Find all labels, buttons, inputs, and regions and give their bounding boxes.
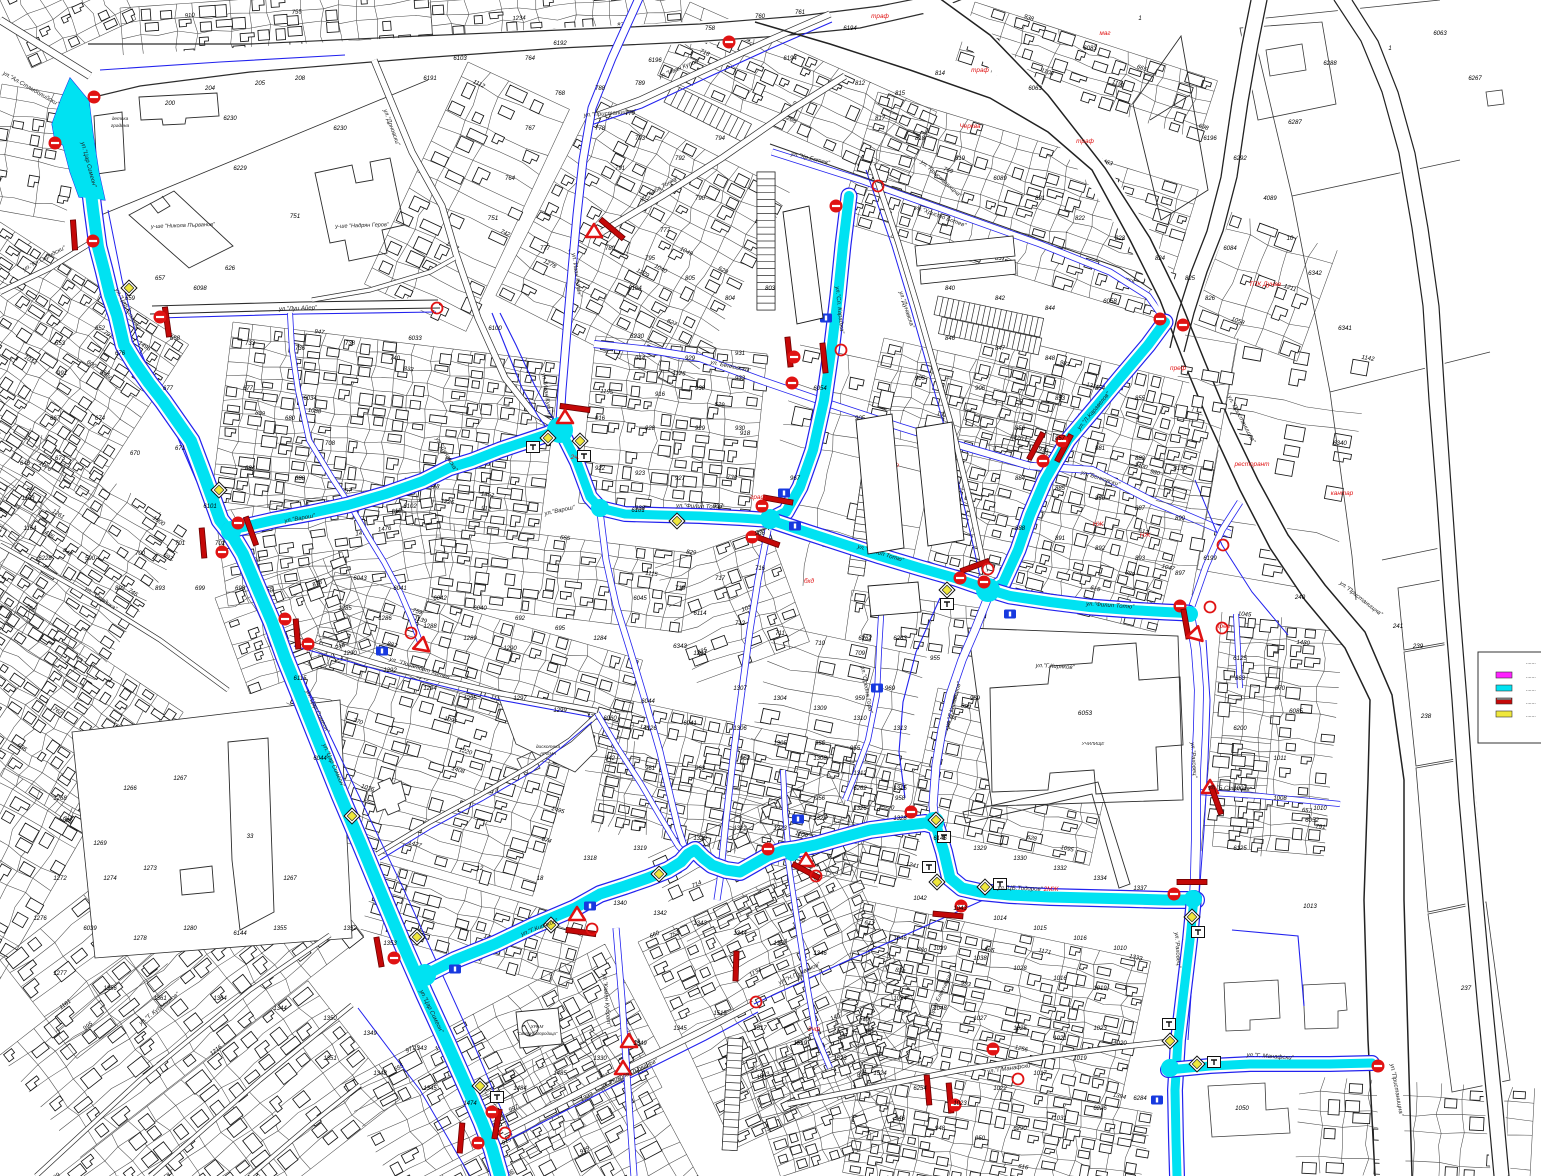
svg-text:маг: маг xyxy=(1099,30,1111,37)
svg-text:793: 793 xyxy=(635,136,646,142)
svg-text:6101: 6101 xyxy=(203,504,216,510)
svg-text:652: 652 xyxy=(95,326,106,332)
svg-text:.......: ....... xyxy=(1526,700,1536,706)
svg-text:НЖ: НЖ xyxy=(1140,532,1152,539)
svg-text:733: 733 xyxy=(245,341,256,347)
svg-text:6125: 6125 xyxy=(1233,655,1247,662)
svg-text:1308: 1308 xyxy=(813,756,827,762)
svg-text:6063: 6063 xyxy=(1028,86,1042,92)
svg-text:18: 18 xyxy=(537,876,544,882)
svg-text:6254: 6254 xyxy=(913,1086,927,1092)
svg-text:1007: 1007 xyxy=(1233,786,1247,792)
svg-text:791: 791 xyxy=(615,166,625,172)
svg-text:740: 740 xyxy=(390,356,401,362)
svg-text:716: 716 xyxy=(755,566,766,572)
svg-text:1480: 1480 xyxy=(1296,640,1310,647)
svg-text:755: 755 xyxy=(292,9,303,16)
svg-text:789: 789 xyxy=(635,81,646,87)
svg-text:815: 815 xyxy=(895,91,906,97)
svg-text:905: 905 xyxy=(915,376,926,382)
svg-text:1515: 1515 xyxy=(713,1011,727,1017)
svg-text:991: 991 xyxy=(57,371,67,377)
svg-text:1020: 1020 xyxy=(1113,1041,1127,1047)
svg-text:1345: 1345 xyxy=(673,1026,687,1032)
svg-text:1356: 1356 xyxy=(103,986,117,992)
svg-text:6262: 6262 xyxy=(853,786,867,792)
svg-text:1025: 1025 xyxy=(1013,1026,1027,1032)
svg-text:1268: 1268 xyxy=(53,796,67,802)
svg-text:6262: 6262 xyxy=(858,636,872,642)
svg-text:886: 886 xyxy=(1095,496,1106,502)
svg-text:1484: 1484 xyxy=(513,1086,527,1092)
svg-text:6342: 6342 xyxy=(1308,270,1322,277)
svg-text:897: 897 xyxy=(1175,571,1186,577)
svg-text:1043: 1043 xyxy=(953,906,967,912)
svg-text:1269: 1269 xyxy=(93,841,107,847)
svg-text:718: 718 xyxy=(675,586,686,592)
svg-text:823: 823 xyxy=(1115,236,1126,242)
svg-text:1034: 1034 xyxy=(893,996,907,1002)
svg-text:33: 33 xyxy=(247,834,254,840)
svg-text:6229: 6229 xyxy=(233,166,247,172)
svg-text:1345: 1345 xyxy=(423,1086,437,1092)
svg-text:657: 657 xyxy=(1302,808,1313,815)
svg-text:1291: 1291 xyxy=(693,651,706,657)
svg-text:Черква: Черква xyxy=(959,123,981,130)
svg-text:238: 238 xyxy=(1420,713,1432,720)
svg-text:6292: 6292 xyxy=(1233,156,1247,162)
svg-text:1318: 1318 xyxy=(583,856,597,862)
svg-text:6340: 6340 xyxy=(1333,440,1347,447)
svg-text:4126: 4126 xyxy=(643,726,657,732)
svg-text:674: 674 xyxy=(95,416,106,422)
svg-text:кантар: кантар xyxy=(1331,490,1354,497)
svg-text:892: 892 xyxy=(115,586,126,592)
svg-text:1010: 1010 xyxy=(1313,806,1327,812)
svg-text:1323: 1323 xyxy=(773,826,787,832)
svg-text:1297: 1297 xyxy=(513,696,527,702)
svg-text:6194: 6194 xyxy=(783,56,797,62)
svg-text:1019: 1019 xyxy=(1073,1056,1087,1062)
svg-text:916: 916 xyxy=(655,392,666,398)
svg-text:1364: 1364 xyxy=(213,996,227,1002)
svg-text:ул.”Луи Айер”: ул.”Луи Айер” xyxy=(278,304,318,312)
svg-text:1023: 1023 xyxy=(953,1101,967,1107)
svg-text:1273: 1273 xyxy=(143,866,157,872)
svg-text:1295: 1295 xyxy=(463,696,477,702)
svg-text:200: 200 xyxy=(164,101,176,107)
svg-text:955: 955 xyxy=(815,741,826,747)
svg-text:711: 711 xyxy=(775,631,785,637)
svg-text:6058: 6058 xyxy=(1103,298,1117,305)
svg-text:1286: 1286 xyxy=(378,616,392,622)
svg-text:6114: 6114 xyxy=(694,611,708,617)
svg-text:1010: 1010 xyxy=(1113,946,1127,952)
svg-text:6040: 6040 xyxy=(473,606,487,612)
svg-text:6085: 6085 xyxy=(1289,708,1303,715)
svg-text:1306: 1306 xyxy=(733,726,747,732)
svg-text:6042: 6042 xyxy=(433,596,447,602)
svg-text:937: 937 xyxy=(713,504,724,510)
svg-text:778: 778 xyxy=(595,126,606,132)
svg-text:717: 717 xyxy=(715,576,726,582)
svg-text:6263: 6263 xyxy=(893,636,907,642)
svg-text:870: 870 xyxy=(1275,686,1286,692)
svg-text:1346: 1346 xyxy=(813,951,827,957)
svg-text:6083: 6083 xyxy=(1083,46,1097,52)
svg-text:855: 855 xyxy=(1135,396,1146,402)
svg-text:1292: 1292 xyxy=(383,668,397,674)
svg-text:6063: 6063 xyxy=(1433,31,1447,37)
svg-text:6284: 6284 xyxy=(1133,1096,1147,1102)
svg-text:1344: 1344 xyxy=(273,1006,287,1012)
svg-text:1474: 1474 xyxy=(463,1101,477,1107)
svg-text:1163: 1163 xyxy=(22,496,36,502)
svg-text:958: 958 xyxy=(895,796,906,802)
svg-text:.......: ....... xyxy=(1526,713,1536,719)
svg-text:893: 893 xyxy=(1135,556,1146,562)
svg-text:6100: 6100 xyxy=(488,326,502,332)
svg-text:768: 768 xyxy=(555,91,566,97)
svg-text:градина: градина xyxy=(111,123,130,129)
svg-text:906: 906 xyxy=(975,386,986,392)
svg-text:1305: 1305 xyxy=(773,741,787,747)
svg-text:”Свето Богородица”: ”Свето Богородица” xyxy=(517,1031,558,1036)
svg-text:2чф: 2чф xyxy=(807,1026,821,1033)
svg-text:893: 893 xyxy=(155,586,166,592)
svg-text:942: 942 xyxy=(605,756,616,762)
svg-text:1322: 1322 xyxy=(733,826,747,832)
svg-text:1332: 1332 xyxy=(1053,866,1067,872)
svg-text:688: 688 xyxy=(295,476,306,482)
svg-text:АРЕНА: АРЕНА xyxy=(539,751,556,757)
svg-text:684: 684 xyxy=(245,466,256,472)
svg-text:1307: 1307 xyxy=(733,686,747,692)
svg-text:1013: 1013 xyxy=(1303,903,1317,910)
svg-text:959: 959 xyxy=(855,696,866,702)
svg-text:204: 204 xyxy=(204,86,216,92)
svg-text:6196: 6196 xyxy=(648,58,662,64)
svg-text:6054: 6054 xyxy=(813,386,827,392)
svg-text:.......: ....... xyxy=(1526,674,1536,680)
svg-text:677: 677 xyxy=(163,386,174,392)
svg-text:6230: 6230 xyxy=(630,333,645,340)
svg-text:923: 923 xyxy=(635,471,646,477)
svg-text:1340: 1340 xyxy=(613,901,627,907)
svg-text:6034: 6034 xyxy=(303,396,317,402)
svg-text:1008: 1008 xyxy=(1273,796,1287,802)
svg-text:6196: 6196 xyxy=(1203,136,1217,142)
svg-text:803: 803 xyxy=(765,286,776,292)
svg-text:2ч.: 2ч. xyxy=(570,454,580,461)
svg-text:1290: 1290 xyxy=(503,646,517,652)
svg-text:791: 791 xyxy=(1315,824,1326,831)
svg-text:928: 928 xyxy=(645,426,656,432)
svg-text:822: 822 xyxy=(1075,216,1086,222)
svg-text:2МЖ: 2МЖ xyxy=(1043,886,1060,893)
svg-text:1285: 1285 xyxy=(338,606,352,612)
svg-text:6045: 6045 xyxy=(633,596,647,602)
svg-text:6039: 6039 xyxy=(83,926,97,932)
svg-text:767: 767 xyxy=(525,126,536,132)
svg-text:963: 963 xyxy=(695,766,706,772)
svg-text:траф: траф xyxy=(971,67,989,74)
svg-text:1352: 1352 xyxy=(343,926,357,932)
svg-text:881: 881 xyxy=(1095,446,1105,452)
svg-text:6044: 6044 xyxy=(641,698,655,705)
svg-text:1021: 1021 xyxy=(1053,1036,1066,1042)
svg-text:6101: 6101 xyxy=(631,508,644,514)
svg-text:бхд: бхд xyxy=(804,577,815,585)
svg-text:1350: 1350 xyxy=(323,1016,337,1022)
svg-text:12: 12 xyxy=(477,866,484,872)
svg-text:1355: 1355 xyxy=(273,926,287,932)
svg-text:1274: 1274 xyxy=(103,876,117,882)
svg-text:237: 237 xyxy=(1460,985,1472,992)
svg-text:1337: 1337 xyxy=(1133,886,1147,892)
svg-text:1276: 1276 xyxy=(33,916,47,922)
svg-text:673: 673 xyxy=(55,456,66,462)
svg-text:779: 779 xyxy=(625,111,636,117)
svg-text:10: 10 xyxy=(1287,236,1294,242)
svg-text:930: 930 xyxy=(695,386,706,392)
svg-text:916: 916 xyxy=(595,416,606,422)
svg-text:892: 892 xyxy=(1095,546,1106,552)
svg-text:929: 929 xyxy=(685,356,696,362)
svg-text:1031: 1031 xyxy=(1053,1116,1066,1122)
svg-text:751: 751 xyxy=(488,215,499,222)
svg-text:795: 795 xyxy=(645,256,656,262)
svg-text:1016: 1016 xyxy=(1073,936,1087,942)
svg-text:6115: 6115 xyxy=(294,676,308,682)
svg-text:1349: 1349 xyxy=(633,1041,647,1047)
svg-text:788: 788 xyxy=(595,86,606,92)
svg-text:1277: 1277 xyxy=(53,971,67,977)
svg-text:.......: ....... xyxy=(1526,660,1536,666)
svg-text:847: 847 xyxy=(995,346,1006,352)
svg-text:6043: 6043 xyxy=(353,576,367,582)
svg-text:ресторант: ресторант xyxy=(1234,461,1271,468)
svg-text:6287: 6287 xyxy=(1288,119,1302,126)
svg-text:764: 764 xyxy=(505,176,516,182)
svg-text:671: 671 xyxy=(175,446,185,452)
svg-text:НЖ: НЖ xyxy=(1093,521,1105,528)
svg-text:927: 927 xyxy=(675,476,686,482)
svg-text:1343: 1343 xyxy=(413,1046,427,1052)
svg-text:граф: граф xyxy=(750,494,766,501)
svg-text:854: 854 xyxy=(1095,386,1106,392)
svg-text:1164: 1164 xyxy=(24,526,38,532)
svg-text:1039: 1039 xyxy=(933,946,947,952)
svg-text:844: 844 xyxy=(1045,306,1056,312)
svg-text:1320: 1320 xyxy=(693,836,707,842)
svg-text:6098: 6098 xyxy=(193,286,207,292)
svg-text:664: 664 xyxy=(100,371,111,377)
svg-text:856: 856 xyxy=(1015,426,1026,432)
svg-text:825: 825 xyxy=(1185,276,1196,282)
svg-text:933: 933 xyxy=(735,376,746,382)
svg-text:738: 738 xyxy=(727,474,738,481)
svg-text:842: 842 xyxy=(995,296,1006,302)
svg-text:659: 659 xyxy=(125,296,136,302)
svg-text:1011: 1011 xyxy=(1274,756,1287,762)
svg-text:910: 910 xyxy=(185,13,196,20)
svg-text:6194: 6194 xyxy=(843,26,857,32)
svg-text:1344: 1344 xyxy=(733,931,747,937)
svg-text:629: 629 xyxy=(714,402,725,409)
svg-text:712: 712 xyxy=(735,621,746,627)
svg-text:6267: 6267 xyxy=(1468,76,1482,82)
svg-text:760: 760 xyxy=(755,14,766,20)
svg-text:6144: 6144 xyxy=(233,931,247,937)
svg-text:1028: 1028 xyxy=(1013,966,1027,972)
svg-text:1294: 1294 xyxy=(423,686,437,692)
svg-text:817: 817 xyxy=(875,116,886,122)
svg-text:1016: 1016 xyxy=(1053,976,1067,982)
svg-text:1342: 1342 xyxy=(653,911,667,917)
svg-text:1019: 1019 xyxy=(1093,986,1107,992)
svg-text:1519: 1519 xyxy=(793,1041,807,1047)
svg-text:590: 590 xyxy=(85,556,96,562)
svg-text:1312: 1312 xyxy=(853,771,867,777)
svg-text:1361: 1361 xyxy=(153,996,166,1002)
svg-text:дискотека: дискотека xyxy=(536,744,561,750)
svg-text:1334: 1334 xyxy=(1093,876,1107,882)
svg-text:6060: 6060 xyxy=(603,716,617,722)
svg-text:1348: 1348 xyxy=(373,1071,387,1077)
svg-text:6146: 6146 xyxy=(933,836,947,842)
svg-text:701: 701 xyxy=(175,541,185,547)
svg-text:1: 1 xyxy=(1388,46,1391,52)
svg-text:6288: 6288 xyxy=(1323,61,1337,67)
svg-text:4089: 4089 xyxy=(1263,196,1277,202)
svg-text:758: 758 xyxy=(705,26,716,32)
svg-text:708: 708 xyxy=(325,441,336,447)
svg-text:626: 626 xyxy=(225,266,236,272)
svg-text:6103: 6103 xyxy=(453,56,467,62)
svg-text:699: 699 xyxy=(195,586,206,592)
svg-text:751: 751 xyxy=(290,213,300,220)
svg-text:857: 857 xyxy=(1055,436,1066,442)
svg-text:814: 814 xyxy=(935,71,946,77)
svg-text:890: 890 xyxy=(1175,516,1186,522)
svg-text:736: 736 xyxy=(295,346,306,352)
svg-text:1234: 1234 xyxy=(512,15,526,22)
svg-text:677: 677 xyxy=(243,386,254,392)
svg-text:детска: детска xyxy=(112,116,129,122)
svg-text:676: 676 xyxy=(115,351,126,357)
svg-text:1352: 1352 xyxy=(773,941,787,947)
svg-text:6191: 6191 xyxy=(423,76,436,82)
svg-text:794: 794 xyxy=(715,136,726,142)
svg-text:1023: 1023 xyxy=(1093,1026,1107,1032)
svg-text:6192: 6192 xyxy=(553,41,567,47)
svg-text:преф: преф xyxy=(1170,365,1187,372)
svg-text:1524: 1524 xyxy=(873,1071,887,1077)
svg-text:680: 680 xyxy=(285,416,296,422)
svg-text:792: 792 xyxy=(675,156,686,162)
svg-text:657: 657 xyxy=(155,276,166,282)
svg-text:239: 239 xyxy=(1412,643,1424,650)
svg-text:812: 812 xyxy=(855,81,866,87)
svg-text:1288: 1288 xyxy=(423,624,437,630)
svg-text:6230: 6230 xyxy=(223,116,237,122)
svg-text:840: 840 xyxy=(945,286,956,292)
svg-text:6033: 6033 xyxy=(408,336,422,342)
svg-text:936: 936 xyxy=(755,531,766,537)
svg-text:1330: 1330 xyxy=(593,1056,607,1062)
svg-text:1046: 1046 xyxy=(893,936,907,942)
svg-text:.......: ....... xyxy=(1526,687,1536,693)
svg-text:956: 956 xyxy=(815,796,826,802)
svg-text:884: 884 xyxy=(1015,476,1026,482)
svg-text:653: 653 xyxy=(55,341,66,347)
svg-text:ХРАМ: ХРАМ xyxy=(530,1024,544,1029)
svg-text:930: 930 xyxy=(735,426,746,432)
svg-text:6044: 6044 xyxy=(313,756,327,762)
svg-text:955: 955 xyxy=(850,745,861,752)
svg-text:1330: 1330 xyxy=(1013,856,1027,862)
svg-text:863: 863 xyxy=(1235,676,1246,682)
svg-text:1048: 1048 xyxy=(933,1006,947,1012)
svg-text:888: 888 xyxy=(1015,526,1026,532)
svg-text:804: 804 xyxy=(725,296,736,302)
svg-text:1349: 1349 xyxy=(363,1031,377,1037)
svg-text:1304: 1304 xyxy=(773,696,787,702)
svg-text:1325: 1325 xyxy=(813,816,827,822)
svg-text:761: 761 xyxy=(795,10,805,16)
svg-text:1014: 1014 xyxy=(993,916,1007,922)
svg-text:853: 853 xyxy=(1055,396,1066,402)
svg-text:702: 702 xyxy=(215,541,226,547)
svg-text:824: 824 xyxy=(1155,256,1166,262)
svg-text:738: 738 xyxy=(345,341,356,347)
svg-text:698: 698 xyxy=(235,586,246,592)
svg-text:1351: 1351 xyxy=(323,1056,336,1062)
svg-text:6200: 6200 xyxy=(1233,726,1247,732)
svg-text:прев: прев xyxy=(1216,623,1231,630)
svg-text:700: 700 xyxy=(135,551,146,557)
svg-text:955: 955 xyxy=(930,656,941,662)
svg-text:6226: 6226 xyxy=(1093,1106,1107,1112)
svg-text:764: 764 xyxy=(525,56,536,62)
svg-text:6125: 6125 xyxy=(1233,846,1247,852)
svg-text:6052: 6052 xyxy=(1305,817,1319,824)
svg-text:967: 967 xyxy=(790,476,801,482)
svg-text:887: 887 xyxy=(1135,506,1146,512)
svg-text:931: 931 xyxy=(735,351,745,357)
svg-text:6041: 6041 xyxy=(393,586,406,592)
svg-text:846: 846 xyxy=(945,336,956,342)
svg-text:1315: 1315 xyxy=(893,786,907,792)
svg-text:1272: 1272 xyxy=(53,876,67,882)
svg-text:205: 205 xyxy=(254,81,266,87)
svg-text:1050: 1050 xyxy=(1235,1105,1249,1112)
svg-text:950: 950 xyxy=(975,1136,986,1142)
svg-text:6130: 6130 xyxy=(1173,466,1187,472)
svg-text:1326: 1326 xyxy=(853,806,867,812)
svg-text:946: 946 xyxy=(895,1116,906,1122)
svg-text:692: 692 xyxy=(515,616,526,622)
svg-text:1042: 1042 xyxy=(913,896,927,902)
svg-text:670: 670 xyxy=(130,451,141,457)
svg-text:805: 805 xyxy=(685,276,696,282)
svg-text:1290: 1290 xyxy=(343,651,357,657)
svg-text:1022: 1022 xyxy=(993,1086,1007,1092)
svg-text:1313: 1313 xyxy=(893,726,907,732)
svg-text:961: 961 xyxy=(645,766,655,772)
svg-text:1017: 1017 xyxy=(1033,1071,1047,1077)
